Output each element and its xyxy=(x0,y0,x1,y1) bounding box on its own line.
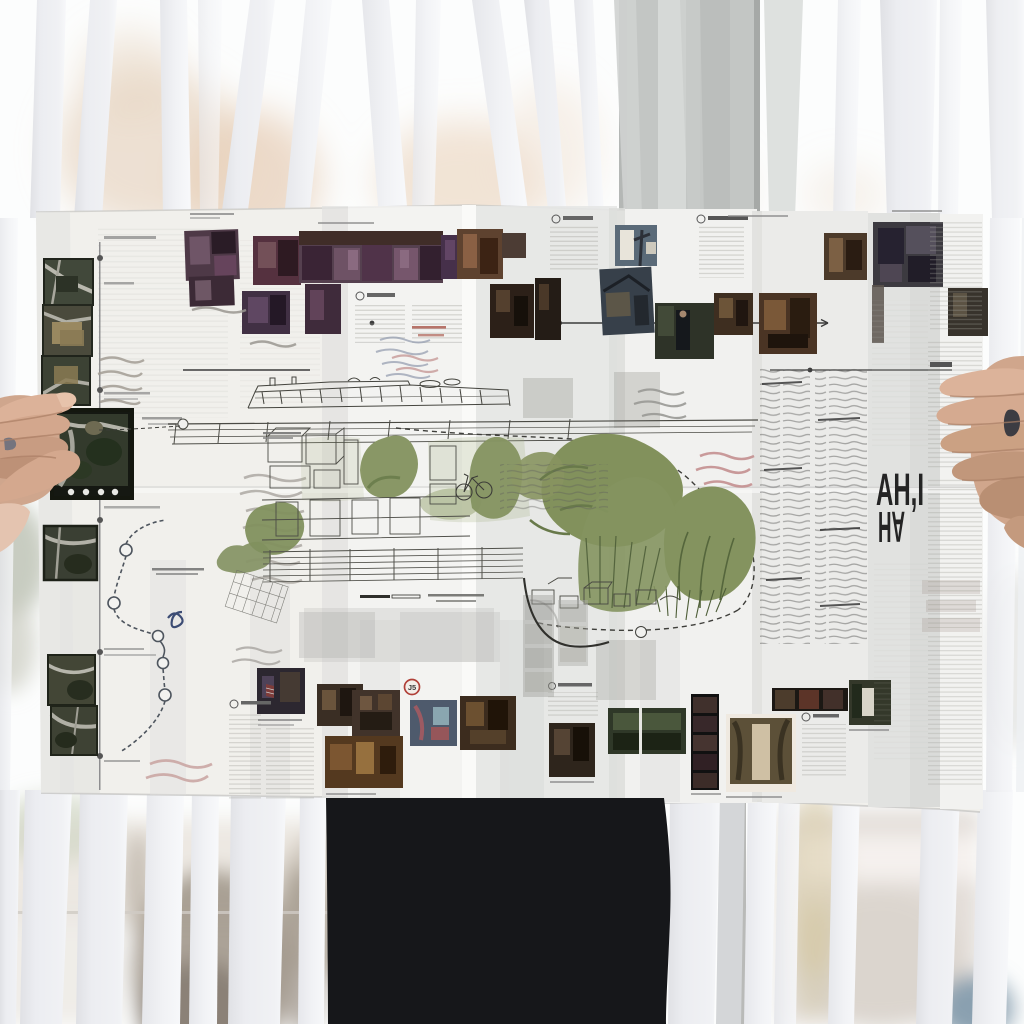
svg-text:J5: J5 xyxy=(408,683,416,692)
svg-text:AH: AH xyxy=(878,502,905,551)
